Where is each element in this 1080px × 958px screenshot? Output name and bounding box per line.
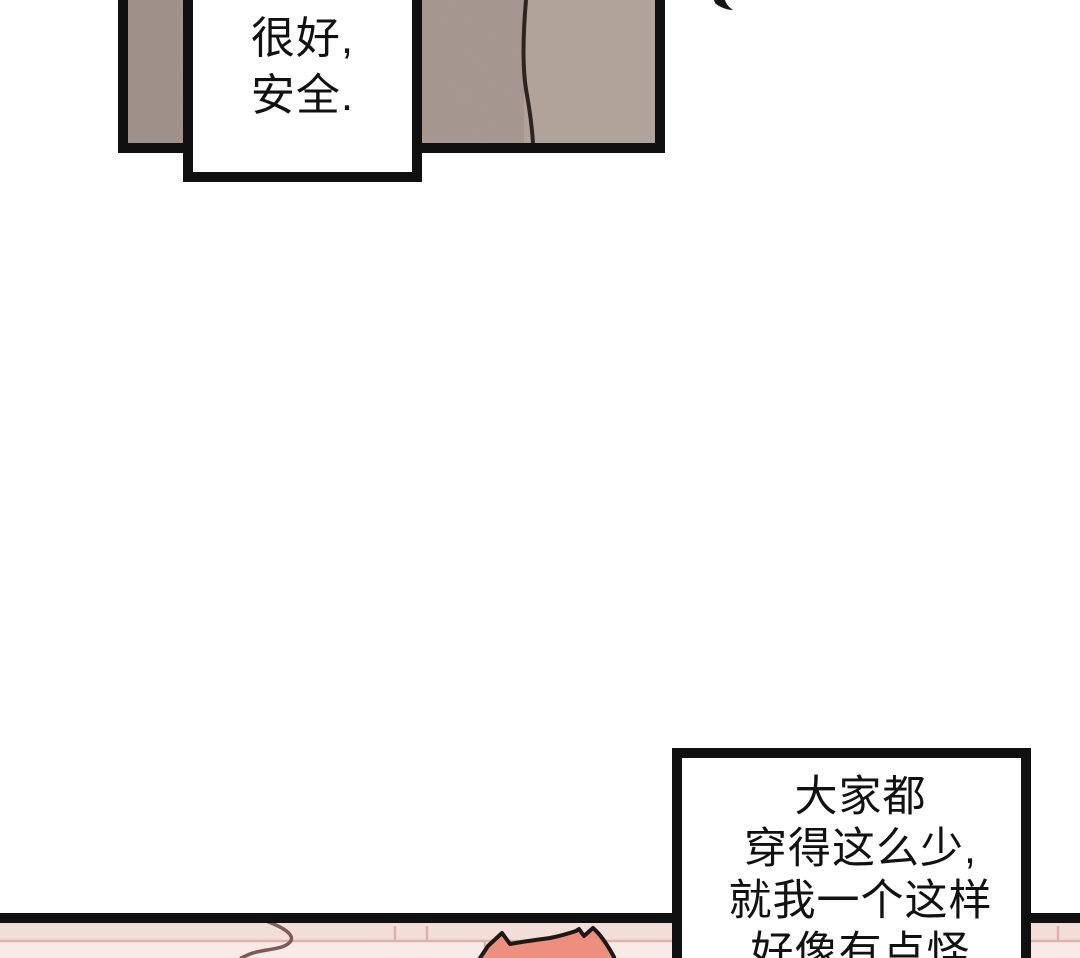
ink-stroke-shape	[714, 0, 733, 10]
speech-line: 大家都	[700, 771, 1021, 823]
speech-line: 很好,	[193, 10, 412, 67]
speech-bubble-bottom-text: 大家都 穿得这么少, 就我一个这样 好像有点怪	[682, 758, 1021, 958]
speech-bubble-top: 很好, 安全.	[183, 0, 422, 182]
speech-line: 就我一个这样	[700, 875, 1021, 927]
character-hair-shape	[476, 928, 616, 958]
speech-line: 穿得这么少,	[700, 823, 1021, 875]
speech-bubble-bottom: 大家都 穿得这么少, 就我一个这样 好像有点怪	[672, 748, 1031, 958]
comic-page: 很好, 安全. 大家都 穿得这么少, 就我一个这样	[0, 0, 1080, 958]
speech-line: 好像有点怪	[700, 927, 1021, 958]
speech-bubble-top-text: 很好, 安全.	[193, 0, 412, 124]
ink-stroke-icon	[711, 0, 737, 12]
speech-line: 安全.	[193, 67, 412, 124]
character-hair	[470, 924, 620, 958]
